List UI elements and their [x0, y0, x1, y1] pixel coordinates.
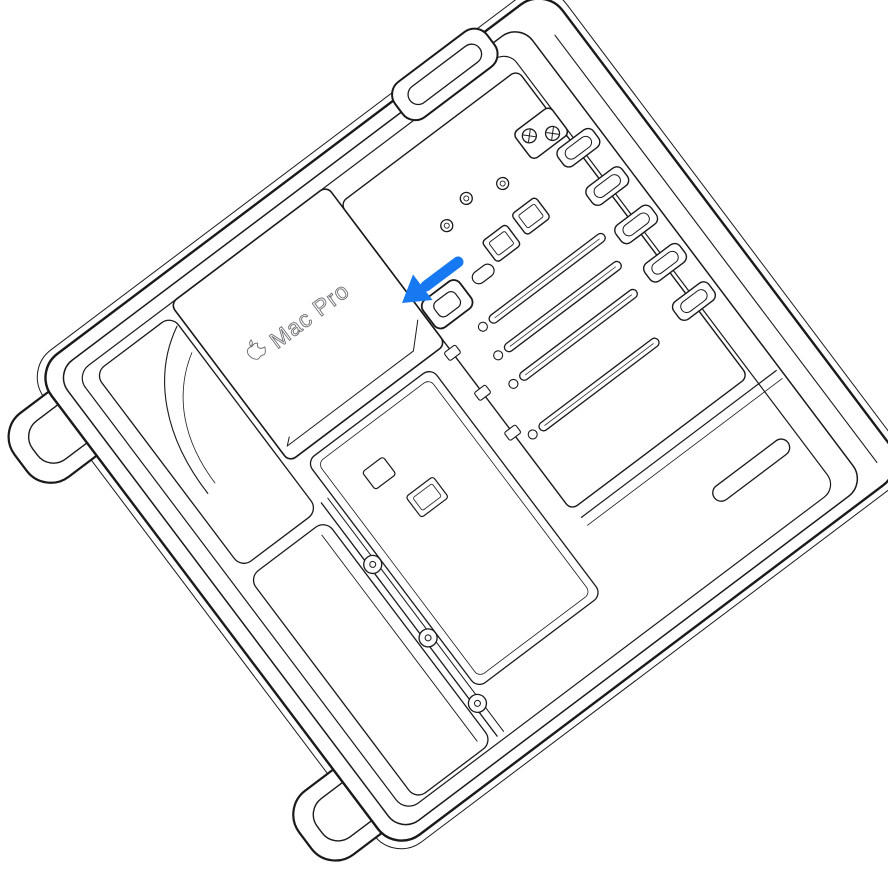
illustration-canvas: Mac Pro: [0, 0, 888, 872]
mac-pro-interior-illustration: Mac Pro: [0, 0, 888, 872]
case-frame: [33, 0, 888, 853]
mac-pro-machine: Mac Pro: [0, 0, 888, 872]
